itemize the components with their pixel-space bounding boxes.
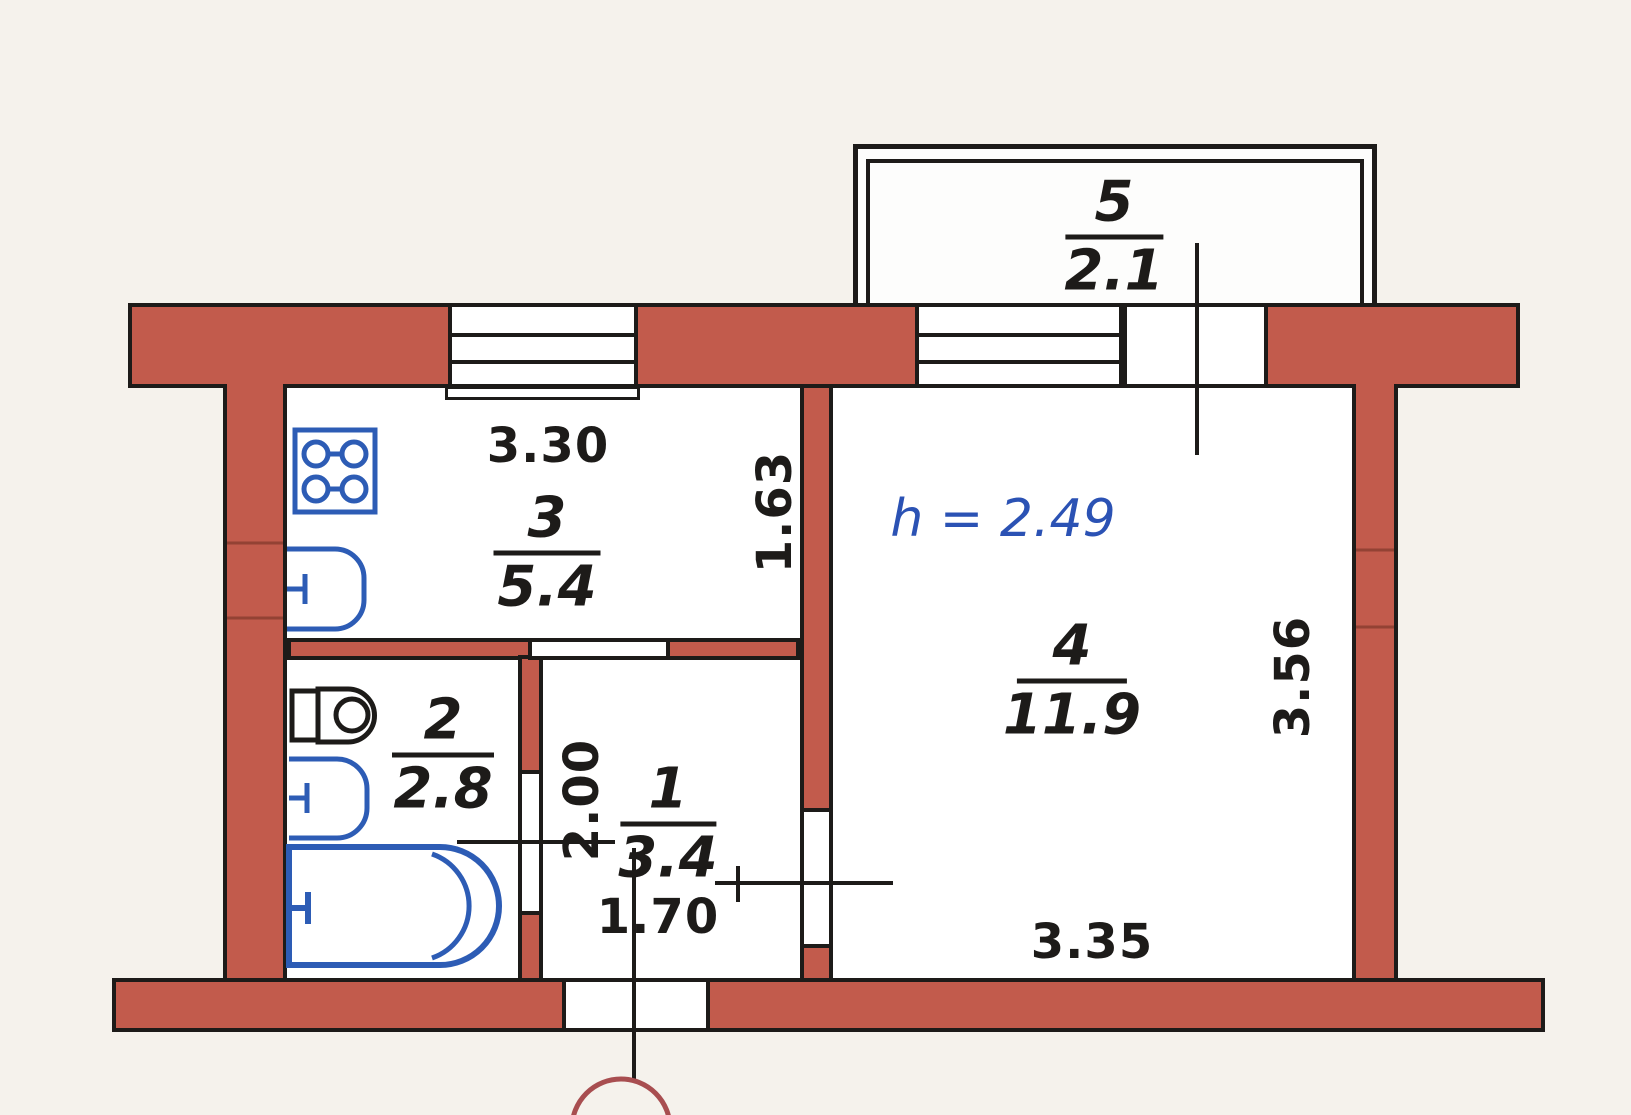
living-area: 11.9 xyxy=(1003,688,1141,744)
outer-wall-left xyxy=(223,384,287,982)
entrance-axis-circle xyxy=(572,1079,670,1115)
kitchen-window-sill xyxy=(445,386,640,400)
living-number: 4 xyxy=(1053,619,1092,675)
window-glass-line xyxy=(918,333,1120,337)
label-room-balcony: 5 2.1 xyxy=(1064,175,1163,300)
kitchen-window xyxy=(448,303,638,388)
hall-area: 3.4 xyxy=(618,831,717,887)
kitchen-door-opening xyxy=(528,638,670,660)
bathroom-door-opening xyxy=(518,770,543,915)
hall-number: 1 xyxy=(649,762,688,818)
dim-living-depth: 3.56 xyxy=(1269,616,1317,738)
kitchen-number: 3 xyxy=(528,491,567,547)
outer-wall-bottom xyxy=(112,978,1545,1032)
label-room-bathroom: 2 2.8 xyxy=(392,693,494,818)
floor-plan: 3 5.4 2 2.8 1 3.4 4 11.9 5 2.1 3.30 1.63… xyxy=(0,0,1631,1115)
window-glass-line xyxy=(451,333,635,337)
balcony-number: 5 xyxy=(1095,175,1134,231)
window-glass-line xyxy=(451,360,635,364)
living-room-window xyxy=(915,303,1123,388)
dim-hall-width: 1.70 xyxy=(597,893,719,941)
entrance-door-opening xyxy=(562,978,710,1032)
dim-hall-depth: 2.00 xyxy=(558,739,606,861)
label-room-hall: 1 3.4 xyxy=(618,762,717,887)
dim-kitchen-width: 3.30 xyxy=(487,422,609,470)
outer-wall-top xyxy=(128,303,1520,388)
dim-living-width: 3.35 xyxy=(1031,918,1153,966)
label-room-living: 4 11.9 xyxy=(1003,619,1141,744)
balcony-area: 2.1 xyxy=(1064,244,1163,300)
bathroom-area: 2.8 xyxy=(393,762,492,818)
outer-wall-right xyxy=(1352,384,1398,982)
living-room-door-opening xyxy=(800,808,833,948)
kitchen-area: 5.4 xyxy=(497,560,596,616)
label-room-kitchen: 3 5.4 xyxy=(494,491,601,616)
bathroom-number: 2 xyxy=(424,693,463,749)
window-glass-line xyxy=(918,360,1120,364)
balcony-door-opening xyxy=(1123,303,1268,388)
dim-kitchen-depth: 1.63 xyxy=(751,451,799,573)
ceiling-height-note: h = 2.49 xyxy=(890,489,1115,549)
